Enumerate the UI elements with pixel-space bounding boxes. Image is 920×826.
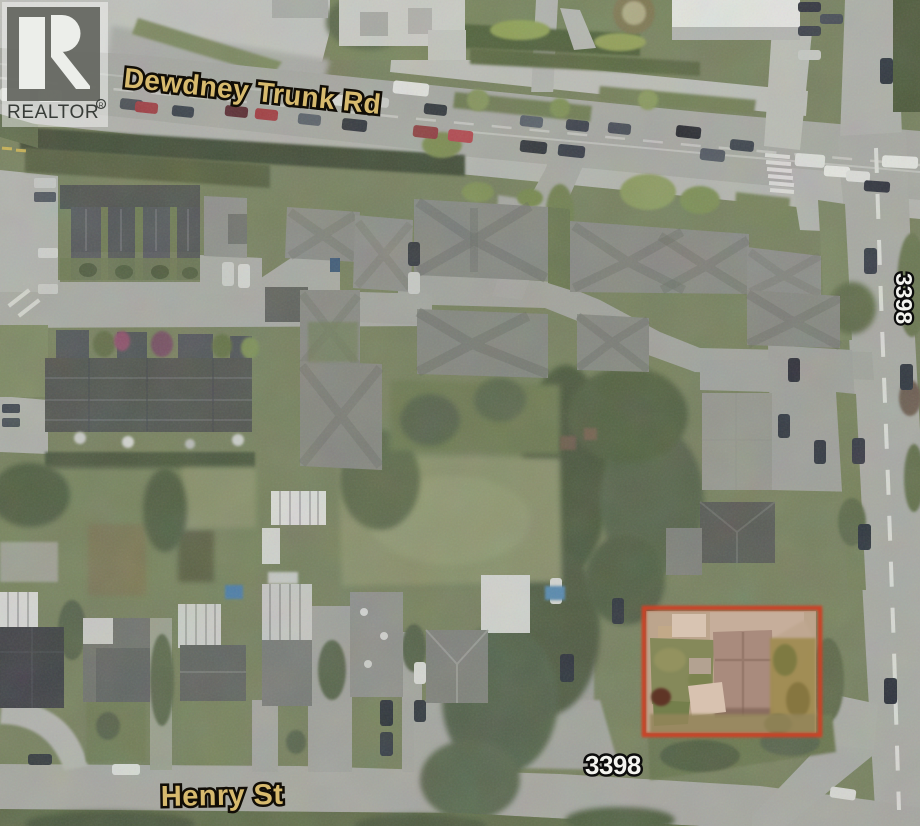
svg-text:3398: 3398 (891, 273, 917, 324)
svg-text:Henry St: Henry St (161, 779, 284, 813)
svg-text:REALTOR: REALTOR (7, 102, 99, 123)
svg-text:3398: 3398 (585, 750, 641, 780)
svg-text:R: R (99, 103, 104, 110)
